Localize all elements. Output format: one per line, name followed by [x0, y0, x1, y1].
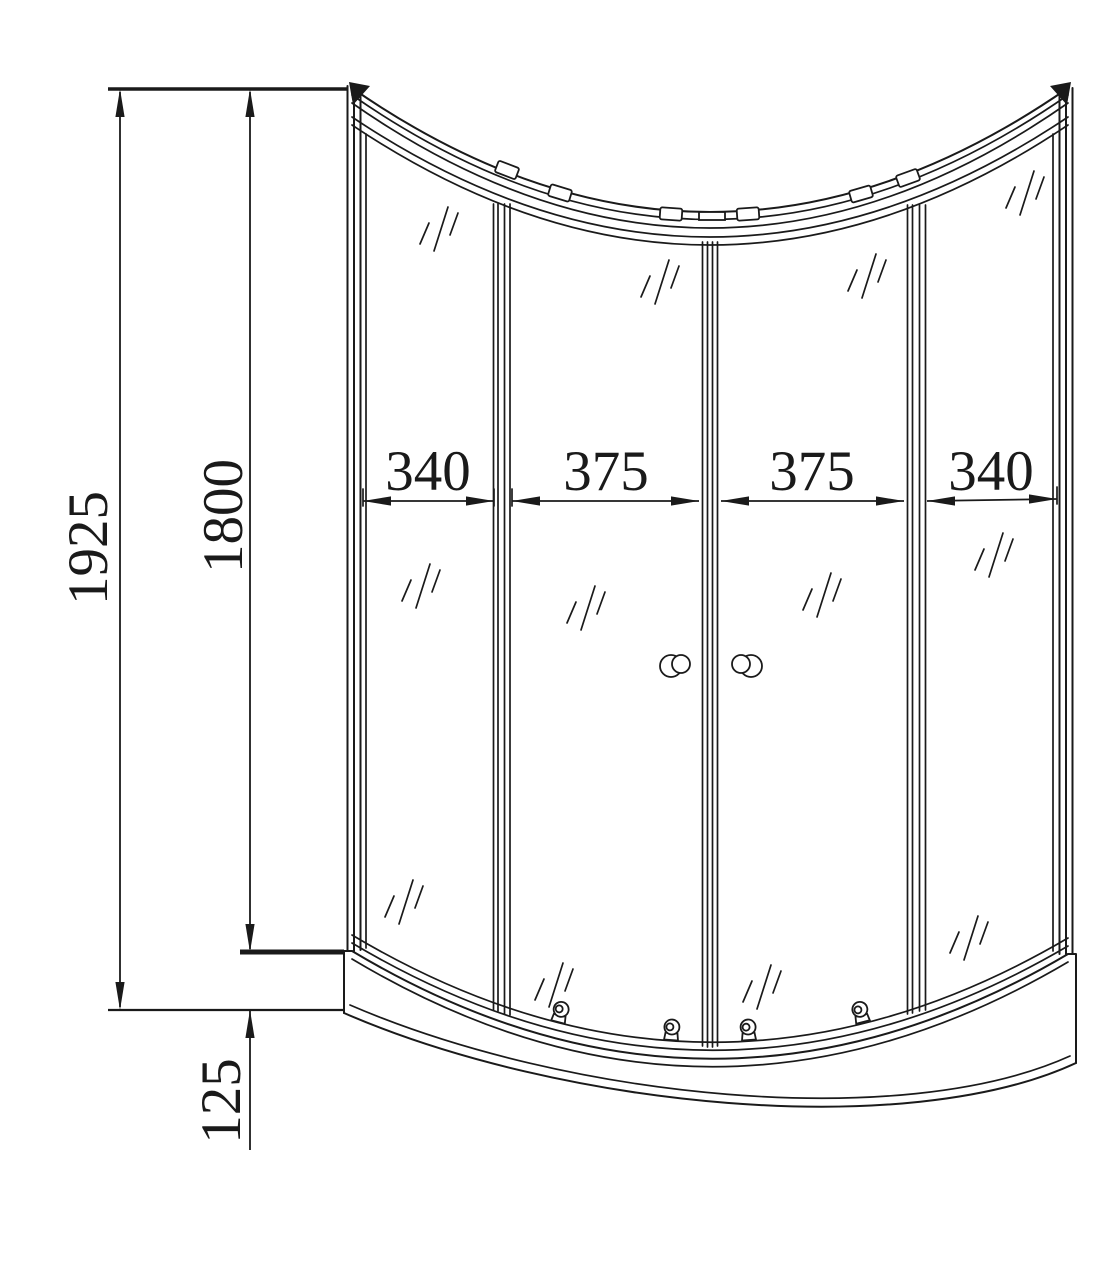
- dim-label-panel-width-2: 375: [563, 440, 649, 503]
- tray-foot-line: [350, 1005, 1070, 1098]
- roller-bracket: [737, 207, 760, 221]
- bottom-rail-and-tray: [344, 935, 1076, 1107]
- tray-left-edge: [344, 951, 352, 1013]
- dim-panel-widths: 340 375 375 340: [363, 440, 1057, 506]
- roller-bracket: [548, 184, 573, 202]
- glass-reflection-mark: [641, 260, 679, 304]
- glass-reflection-mark: [567, 586, 605, 630]
- dim-label-panel-width-4: 340: [948, 440, 1034, 503]
- glass-reflection-mark: [848, 254, 886, 298]
- door-guide: [740, 1019, 756, 1040]
- left-door-stile: [494, 204, 511, 1015]
- bottom-rail-arc: [352, 943, 1068, 1050]
- glass-reflection-mark: [402, 564, 440, 608]
- dim-label-panel-width-1: 340: [385, 440, 471, 503]
- drawing-canvas: 1925 1800 125 340 375 375 340: [0, 0, 1110, 1280]
- door-handles: [660, 655, 762, 677]
- glass-reflection-mark: [420, 207, 458, 251]
- arrowhead-left-icon: [721, 496, 749, 505]
- right-wall-profile: [1060, 86, 1073, 954]
- left-wall-profile: [348, 86, 361, 951]
- top-rail: [352, 88, 1068, 245]
- arrowhead-left-icon: [512, 496, 540, 505]
- glass-reflection-mark: [385, 880, 423, 924]
- dim-label-overall-height: 1925: [57, 491, 120, 605]
- door-guide: [664, 1019, 680, 1040]
- glass-reflection-mark: [950, 916, 988, 960]
- door-guide: [851, 1000, 871, 1024]
- glass-panels: [366, 134, 1053, 1047]
- glass-reflection-mark: [1006, 171, 1044, 215]
- arrowhead-up-icon: [245, 1010, 254, 1038]
- top-rail-arc: [352, 103, 1068, 228]
- roller-bracket: [849, 185, 873, 203]
- top-rail-outer-arc: [352, 88, 1068, 212]
- arrowhead-right-icon: [876, 496, 904, 505]
- glass-reflection-mark: [535, 963, 573, 1007]
- glass-reflection-mark: [803, 573, 841, 617]
- glass-reflection-mark: [975, 533, 1013, 577]
- dim-label-enclosure-height: 1800: [192, 459, 255, 573]
- bottom-rail-arc: [352, 935, 1068, 1042]
- arrowhead-down-icon: [115, 982, 124, 1010]
- glass-top-edge-arc: [352, 125, 1068, 245]
- tray-right-edge: [1068, 954, 1076, 1063]
- left-door-knob-face: [672, 655, 690, 673]
- roller-bracket: [896, 169, 921, 188]
- door-guide: [551, 1000, 571, 1024]
- dim-label-tray-height: 125: [190, 1058, 253, 1144]
- center-stile-cap: [699, 212, 725, 220]
- dim-label-panel-width-3: 375: [769, 440, 855, 503]
- roller-bracket: [660, 207, 683, 221]
- glass-reflections: [385, 171, 1044, 1009]
- top-rail-arc: [352, 95, 1068, 220]
- right-door-stile: [908, 205, 926, 1014]
- arrowhead-up-icon: [115, 89, 124, 117]
- arrowhead-up-icon: [245, 89, 254, 117]
- right-door-knob-face: [732, 655, 750, 673]
- glass-reflection-mark: [743, 965, 781, 1009]
- dim-enclosure-height: 1800: [192, 89, 344, 952]
- arrowhead-right-icon: [671, 496, 699, 505]
- dim-tray-height: 125: [190, 1010, 255, 1150]
- center-door-stiles: [703, 242, 718, 1047]
- arrowhead-down-icon: [245, 924, 254, 952]
- shower-enclosure-technical-drawing: 1925 1800 125 340 375 375 340: [0, 0, 1110, 1280]
